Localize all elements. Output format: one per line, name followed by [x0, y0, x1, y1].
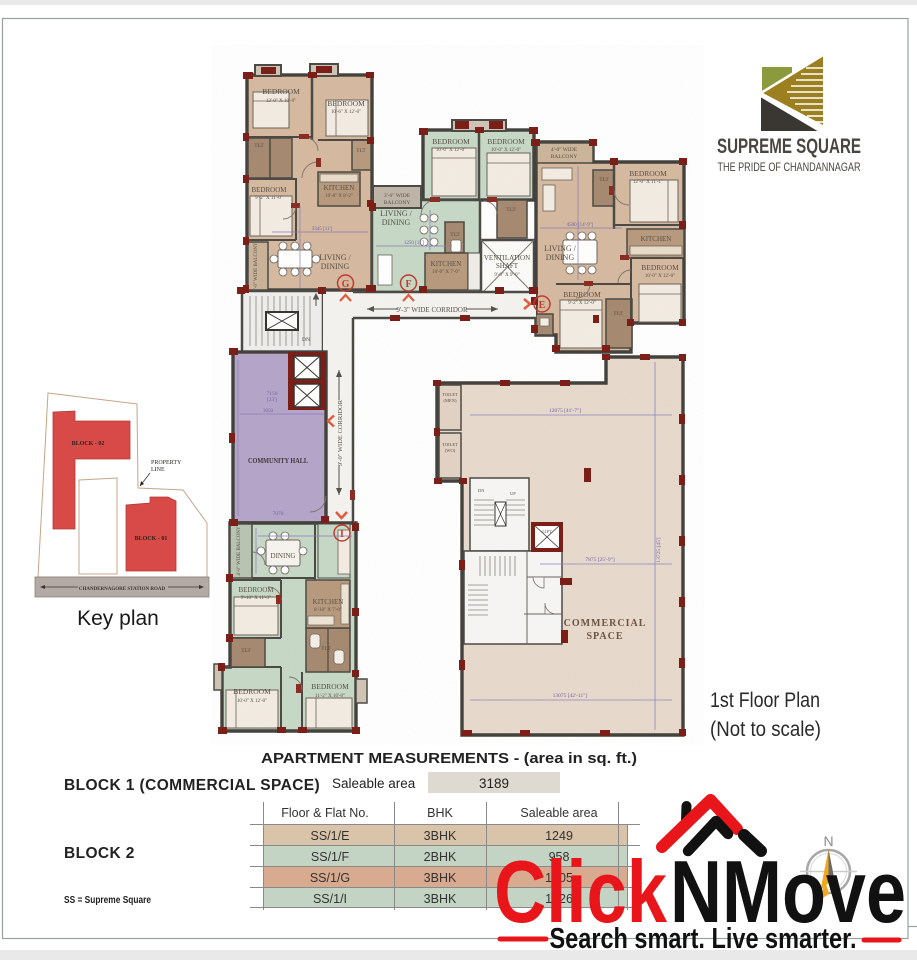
svg-text:1st Floor Plan: 1st Floor Plan	[710, 689, 820, 712]
svg-text:3BHK: 3BHK	[424, 829, 457, 843]
svg-text:Saleable area: Saleable area	[520, 806, 597, 820]
svg-text:BLOCK - 02: BLOCK - 02	[72, 441, 105, 447]
svg-text:BLOCK 2: BLOCK 2	[64, 845, 135, 862]
svg-text:CHANDERNAGORE STATION ROAD: CHANDERNAGORE STATION ROAD	[79, 587, 166, 592]
svg-text:BLOCK - 01: BLOCK - 01	[135, 536, 168, 542]
svg-text:3BHK: 3BHK	[424, 892, 457, 906]
svg-text:SUPREME SQUARE: SUPREME SQUARE	[717, 135, 861, 158]
svg-text:SS/1/F: SS/1/F	[311, 850, 350, 864]
svg-text:(Not to scale): (Not to scale)	[710, 718, 821, 741]
svg-text:LINE: LINE	[151, 467, 165, 473]
svg-text:PROPERTY: PROPERTY	[151, 460, 182, 466]
svg-text:Search smart. Live smarter.: Search smart. Live smarter.	[550, 923, 857, 955]
svg-text:2BHK: 2BHK	[424, 850, 457, 864]
svg-text:3189: 3189	[479, 776, 509, 791]
svg-text:SS/1/G: SS/1/G	[310, 871, 350, 885]
svg-text:Floor & Flat No.: Floor & Flat No.	[281, 806, 369, 820]
svg-text:1249: 1249	[545, 829, 573, 843]
svg-text:BLOCK 1 (COMMERCIAL SPACE): BLOCK 1 (COMMERCIAL SPACE)	[64, 777, 320, 794]
svg-text:3BHK: 3BHK	[424, 871, 457, 885]
svg-text:THE PRIDE OF CHANDANNAGAR: THE PRIDE OF CHANDANNAGAR	[718, 160, 861, 174]
svg-text:Key plan: Key plan	[77, 607, 159, 630]
svg-text:SS/1/I: SS/1/I	[313, 892, 347, 906]
svg-text:BHK: BHK	[427, 806, 453, 820]
svg-text:APARTMENT MEASUREMENTS - (area: APARTMENT MEASUREMENTS - (area in sq. ft…	[261, 750, 637, 767]
svg-text:Saleable area: Saleable area	[332, 776, 416, 791]
svg-text:SS/1/E: SS/1/E	[311, 829, 350, 843]
svg-text:SS = Supreme Square: SS = Supreme Square	[64, 894, 151, 906]
